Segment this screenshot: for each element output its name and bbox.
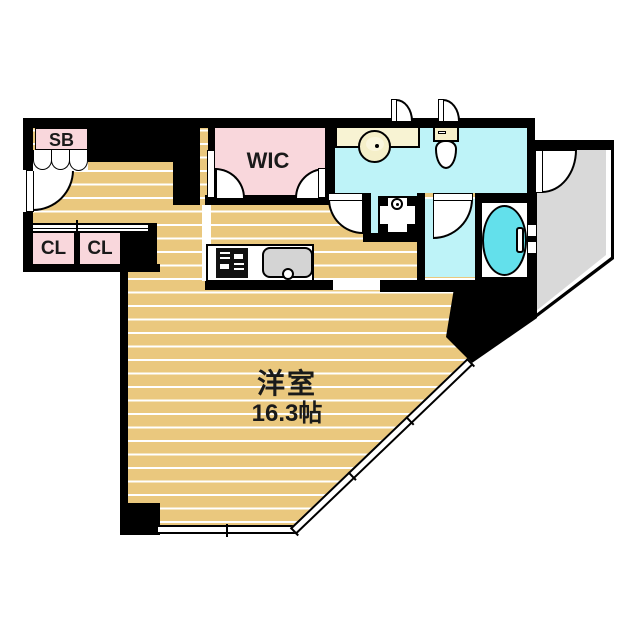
wall-pan-bottom (363, 233, 425, 242)
wic-door-right-leaf (318, 168, 326, 198)
wic-label: WIC (238, 148, 298, 174)
wic-door-left-leaf (207, 150, 215, 198)
wall-corner-block (120, 503, 160, 535)
top-door-right-swing (443, 99, 460, 121)
window-south (158, 525, 295, 534)
washroom-door-leaf (328, 193, 363, 201)
washing-machine-pan (378, 196, 417, 234)
top-door-right-leaf (438, 99, 444, 122)
top-door-left-swing (396, 99, 413, 121)
kitchen-doorway-gap (333, 280, 380, 290)
kitchen-sink (262, 247, 313, 278)
water-outlet-icon (391, 198, 403, 210)
floor-plan: WIC (0, 0, 640, 640)
closet-track (33, 223, 148, 233)
wall-left-lower (23, 212, 33, 272)
accordion-door (33, 150, 88, 171)
main-room-size: 16.3帖 (207, 393, 367, 428)
wall-wic-west-stub (208, 128, 215, 150)
wall-room-west (120, 264, 128, 505)
bathtub-handle (516, 227, 524, 253)
faucet (282, 268, 294, 280)
wall-sb-wic-chunk (87, 128, 173, 162)
closet-left-label: CL (33, 238, 74, 260)
entrance-door-leaf (26, 170, 34, 212)
bath-door-tab-bottom (527, 241, 537, 254)
closet-right-label: CL (80, 238, 120, 260)
round-basin (358, 130, 391, 163)
wall-hall-wic (173, 128, 200, 205)
shoe-box-label: SB (35, 130, 88, 151)
balcony-door-leaf (535, 150, 543, 193)
vestibule-door-leaf (433, 193, 473, 201)
stove (216, 248, 248, 278)
wall-bath-north (475, 193, 535, 203)
top-door-left-leaf (391, 99, 397, 122)
wall-bath-west (475, 203, 482, 287)
bath-door-tab-top (527, 224, 537, 237)
balcony-top-wall (535, 142, 612, 150)
wall-left-upper (23, 128, 33, 172)
